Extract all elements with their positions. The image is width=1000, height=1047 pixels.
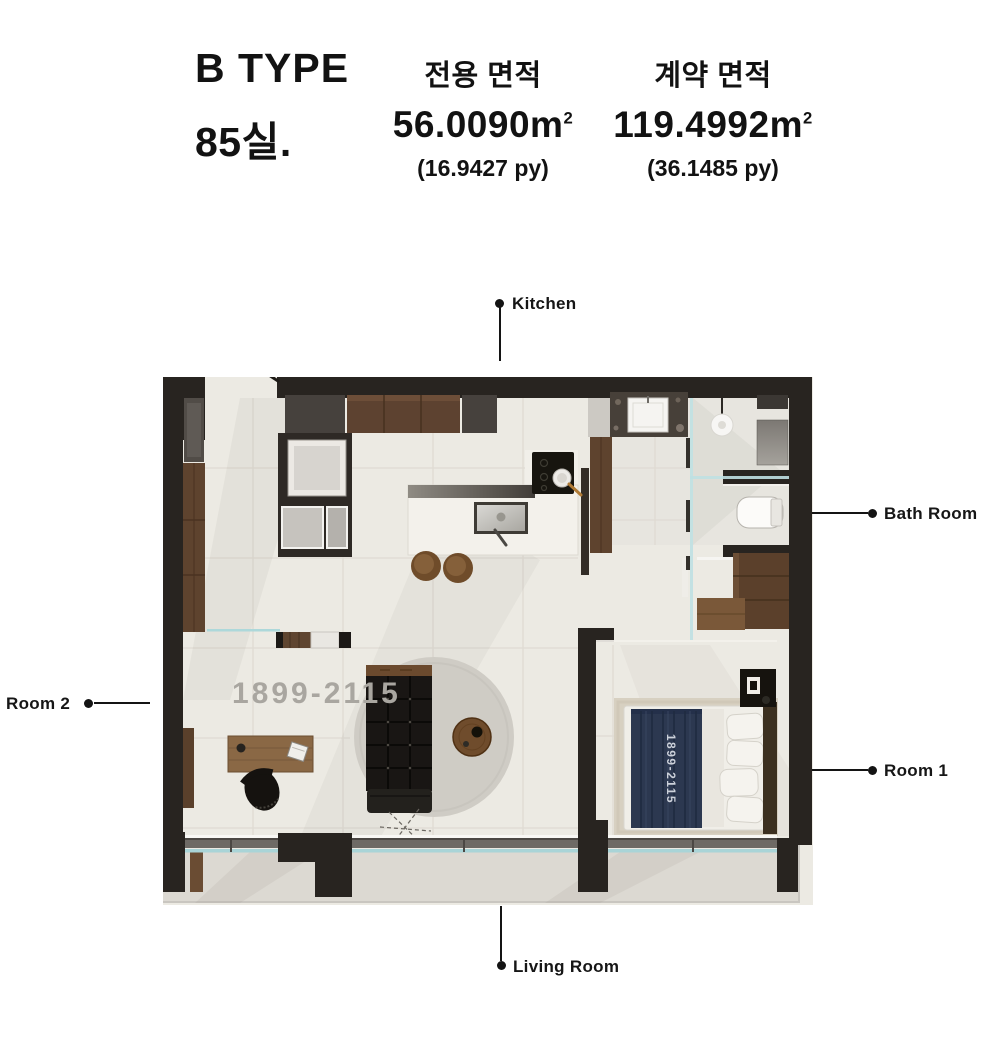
floorplan-page: B TYPE 85실. 전용 면적 56.0090m2 (16.9427 py)… — [0, 0, 1000, 1047]
floor-plan: 1899-2115 — [163, 377, 813, 907]
room-count: 85실. — [195, 108, 292, 168]
living-dot — [497, 961, 506, 970]
room2-leader-line — [94, 702, 150, 704]
bath-room-label: Bath Room — [884, 504, 977, 524]
desk — [228, 736, 313, 772]
contract-area-title: 계약 면적 — [583, 52, 843, 94]
bed-watermark: 1899-2115 — [664, 734, 678, 804]
living-leader-line — [500, 906, 502, 961]
headboard — [763, 702, 777, 834]
floor-watermark: 1899-2115 — [232, 677, 401, 710]
kitchen-dot — [495, 299, 504, 308]
exclusive-area-title: 전용 면적 — [353, 52, 613, 94]
contract-area-value: 119.4992m2 — [583, 104, 843, 146]
room-2-label: Room 2 — [6, 694, 70, 714]
living-room-label: Living Room — [513, 957, 619, 977]
coffee-table — [453, 718, 491, 756]
room1-dot — [868, 766, 877, 775]
glass-track — [207, 629, 280, 632]
type-title: B TYPE — [195, 45, 349, 92]
room-1-label: Room 1 — [884, 761, 948, 781]
balcony-windows — [185, 835, 777, 853]
exclusive-area-number: 56.0090 — [393, 104, 530, 145]
contract-area-unit: m2 — [770, 104, 813, 145]
contract-area-number: 119.4992 — [613, 104, 769, 145]
exclusive-area-value: 56.0090m2 — [353, 104, 613, 146]
kitchen-leader-line — [499, 306, 501, 361]
room1-leader-line — [812, 769, 868, 771]
kitchen-label: Kitchen — [512, 294, 576, 314]
contract-area-pyeong: (36.1485 py) — [583, 155, 843, 182]
wall-trim — [723, 484, 789, 486]
exclusive-area-pyeong: (16.9427 py) — [353, 155, 613, 182]
exclusive-area-unit: m2 — [530, 104, 573, 145]
room2-dot — [84, 699, 93, 708]
sideboard — [276, 632, 351, 648]
bath-dot — [868, 509, 877, 518]
bath-leader-line — [812, 512, 868, 514]
